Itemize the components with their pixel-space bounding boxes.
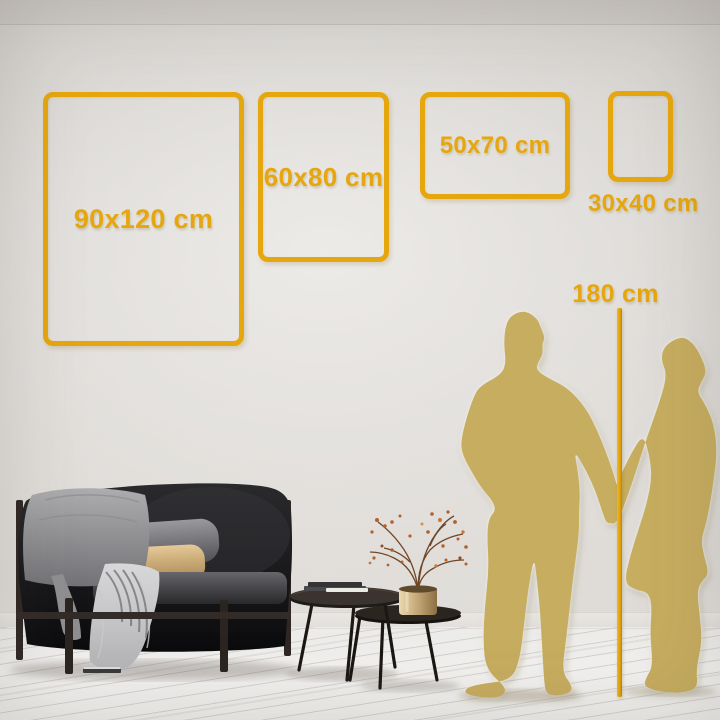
brass-vase: [399, 585, 437, 615]
sofa-front-left-leg: [65, 598, 73, 674]
books-stack: [304, 582, 368, 592]
frame-60x80: 60x80 cm: [258, 92, 389, 262]
sofa-stretcher-rail: [16, 612, 291, 619]
sofa-shadow: [10, 660, 300, 680]
frame-50x70: 50x70 cm: [420, 92, 570, 199]
couple-silhouette: [450, 300, 720, 705]
man-silhouette: [461, 312, 620, 698]
frame-30x40-label: 30x40 cm: [588, 190, 698, 218]
sofa-with-cushions-and-throw: [5, 480, 305, 685]
frame-30x40: [608, 91, 673, 182]
ceiling-band: [0, 0, 720, 24]
size-guide-scene: 90x120 cm 60x80 cm 50x70 cm 30x40 cm 180…: [0, 0, 720, 720]
sofa-front-right-leg: [220, 600, 228, 672]
large-coffee-table: [290, 587, 404, 680]
frame-90x120-label: 90x120 cm: [74, 204, 213, 235]
wall-ceiling-seam: [0, 24, 720, 25]
table-shadow-small: [360, 680, 460, 692]
height-ruler-line: [617, 308, 622, 697]
woman-silhouette: [605, 338, 716, 693]
frame-90x120: 90x120 cm: [43, 92, 244, 346]
frame-50x70-label: 50x70 cm: [440, 132, 551, 160]
nesting-coffee-tables: [282, 502, 470, 707]
height-reference-label: 180 cm: [558, 280, 673, 309]
frame-60x80-label: 60x80 cm: [264, 162, 384, 193]
floor-book-pages: [83, 667, 121, 669]
